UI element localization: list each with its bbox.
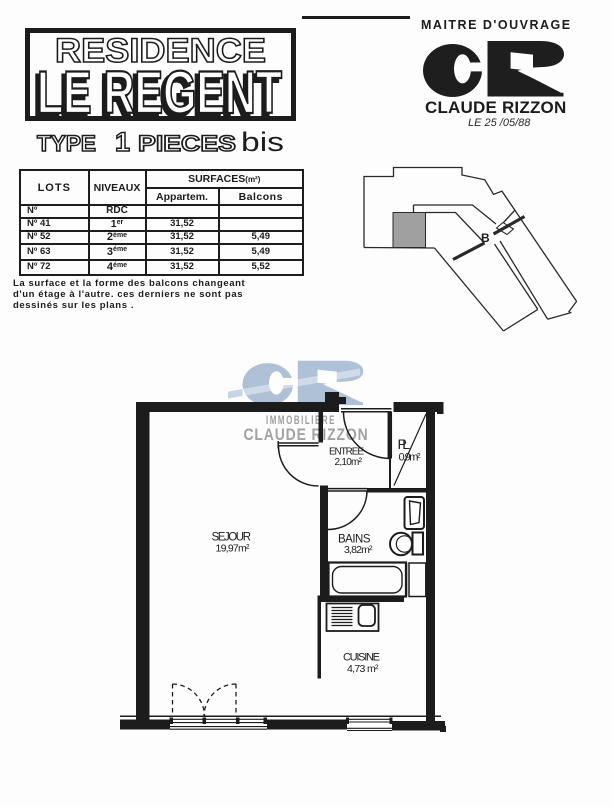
svg-text:3,82m²: 3,82m² [344,544,373,556]
svg-text:0,9m²: 0,9m² [399,452,421,464]
svg-text:2,10m²: 2,10m² [335,457,363,468]
svg-text:PL: PL [398,436,411,452]
svg-text:CUISINE: CUISINE [343,652,380,664]
svg-text:4,73 m²: 4,73 m² [347,663,379,675]
svg-text:19,97m²: 19,97m² [216,542,251,554]
svg-text:ENTREE: ENTREE [329,447,364,458]
